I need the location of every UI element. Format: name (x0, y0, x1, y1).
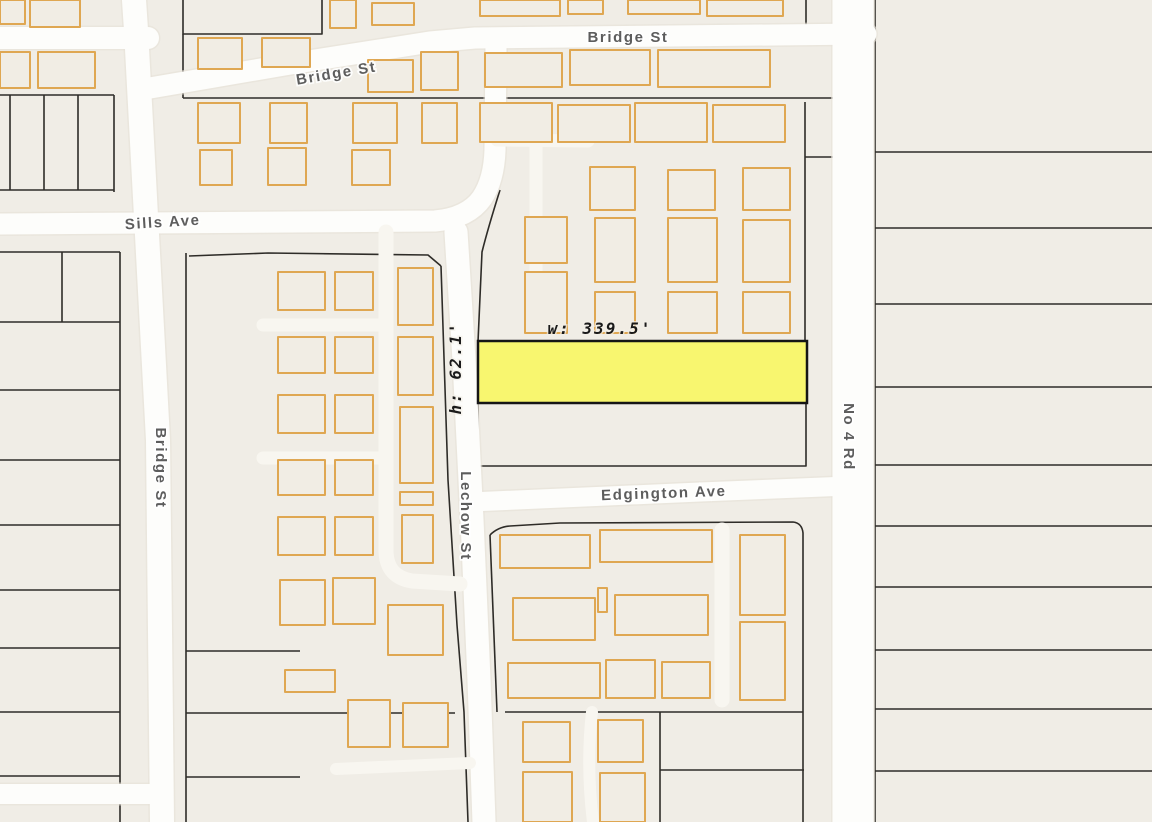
building-footprint (523, 722, 570, 762)
building-footprint (0, 0, 25, 24)
street-label-no-4-rd: No 4 Rd (840, 403, 857, 471)
building-footprint (335, 272, 373, 310)
building-footprint (740, 622, 785, 700)
building-footprint (558, 105, 630, 142)
building-footprint (523, 772, 572, 822)
building-footprint (668, 218, 717, 282)
building-footprint (513, 598, 595, 640)
parcel-height-dimension-label: h: 62.1' (446, 321, 465, 414)
building-footprint (568, 0, 603, 14)
building-footprint (200, 150, 232, 185)
building-footprint (278, 272, 325, 310)
building-footprint (480, 103, 552, 142)
building-footprint (598, 720, 643, 762)
building-footprint (278, 460, 325, 495)
highlighted-parcel[interactable] (478, 341, 807, 403)
building-footprint (421, 52, 458, 90)
building-footprint (352, 150, 390, 185)
building-footprint (38, 52, 95, 88)
building-footprint (740, 535, 785, 615)
building-footprint (662, 662, 710, 698)
building-footprint (335, 460, 373, 495)
building-footprint (270, 103, 307, 143)
street-label-lechow-st: Lechow St (457, 471, 474, 560)
building-footprint (422, 103, 457, 143)
building-footprint (598, 588, 607, 612)
building-footprint (668, 292, 717, 333)
building-footprint (485, 53, 562, 87)
south-block-lane (589, 712, 593, 822)
building-footprint (278, 337, 325, 373)
building-footprint (668, 170, 715, 210)
map-canvas[interactable]: w: 339.5' h: 62.1' Bridge St Bridge St S… (0, 0, 1152, 822)
building-footprint (398, 337, 433, 395)
building-footprint (348, 700, 390, 747)
building-footprint (330, 0, 356, 28)
parcel-width-dimension-label: w: 339.5' (548, 319, 653, 338)
building-footprint (595, 218, 635, 282)
building-footprint (508, 663, 600, 698)
building-footprint (285, 670, 335, 692)
building-footprint (278, 395, 325, 433)
building-footprint (333, 578, 375, 624)
building-footprint (400, 492, 433, 505)
building-footprint (335, 395, 373, 433)
street-label-bridge-st-west: Bridge St (152, 427, 169, 508)
building-footprint (372, 3, 414, 25)
building-footprint (707, 0, 783, 16)
building-footprint (600, 530, 712, 562)
building-footprint (600, 773, 645, 822)
building-footprint (743, 220, 790, 282)
building-footprint (0, 52, 30, 88)
building-footprint (590, 167, 635, 210)
building-footprint (278, 517, 325, 555)
building-footprint (30, 0, 80, 27)
building-footprint (743, 168, 790, 210)
building-footprint (658, 50, 770, 87)
building-footprint (500, 535, 590, 568)
building-footprint (570, 50, 650, 85)
building-footprint (388, 605, 443, 655)
building-footprint (402, 515, 433, 563)
building-footprint (606, 660, 655, 698)
building-footprint (262, 38, 310, 67)
building-footprint (268, 148, 306, 185)
building-footprint (198, 103, 240, 143)
street-label-bridge-st-top: Bridge St (587, 29, 668, 46)
building-footprint (615, 595, 708, 635)
building-footprint (353, 103, 397, 143)
building-footprint (480, 0, 560, 16)
building-footprint (635, 103, 707, 142)
building-footprint (398, 268, 433, 325)
block-lane-south (336, 763, 470, 769)
building-footprint (713, 105, 785, 142)
building-footprint (403, 703, 448, 747)
building-footprint (743, 292, 790, 333)
building-footprint (335, 337, 373, 373)
map-viewport[interactable]: w: 339.5' h: 62.1' Bridge St Bridge St S… (0, 0, 1152, 822)
building-footprint (628, 0, 700, 14)
building-footprint (525, 217, 567, 263)
building-footprint (280, 580, 325, 625)
building-footprint (400, 407, 433, 483)
building-footprint (335, 517, 373, 555)
building-footprint (198, 38, 242, 69)
